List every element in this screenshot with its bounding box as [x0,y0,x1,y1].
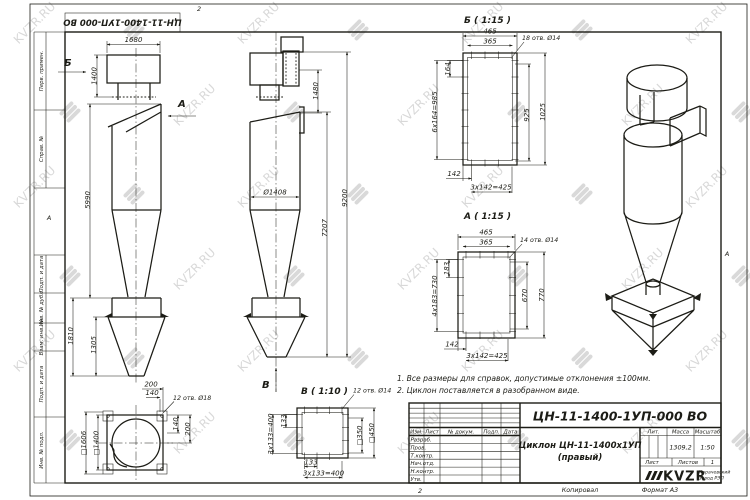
tb-name-line1: Циклон ЦН-11-1400х1УП [518,441,641,451]
dim-v-400-bottom: 3х133=400 [303,470,345,478]
detail-b-title: Б ( 1:15 ) [464,16,511,26]
dim-b-985: 6х164=985 [431,91,439,133]
dim-v-450: □450 [368,422,376,443]
stamp-vzam-inv: Взам. инв. № [39,318,45,355]
drawing-sheet: KVZR.RUKVZR.RUKVZR.RUKVZR.RUKVZR.RUKVZR.… [0,0,750,500]
dim-b-465: 465 [483,28,497,36]
company-name-line2: завод РЭП [699,476,724,482]
tb-col-list: Лист [424,430,440,436]
tb-col-podp: Подп. [483,430,499,436]
dim-plan-holes: 12 отв. Ø18 [173,394,211,402]
dim-plan-200-top: 200 [144,381,158,389]
detail-b: Б ( 1:15 ) 465 365 18 отв. Ø14 164 6х164… [431,16,560,193]
dim-a-465: 465 [479,229,493,237]
view-plan: 200 140 12 отв. Ø18 □1606 □1400 140 200 [80,381,211,481]
tb-sheets-label: Листов [677,460,698,466]
dim-7207: 7207 [321,219,329,237]
dim-1400: 1400 [91,67,99,85]
dim-b-holes: 18 отв. Ø14 [522,34,560,42]
tb-scale-label: Масштаб [695,430,721,436]
view-front: Ø1408 1480 7207 9200 В [243,32,351,392]
tb-name-line2: (правый) [558,453,603,463]
zone-mark-right: А [724,250,729,258]
dim-b-425: 3х142=425 [470,184,512,192]
dim-1680: 1680 [125,36,143,44]
dim-b-925: 925 [523,108,531,122]
dim-b-365: 365 [483,38,497,46]
tb-sheets-value: 1 [711,460,714,466]
dim-a-425: 3х142=425 [466,352,508,360]
tb-row-prov: Пров. [411,445,427,451]
dim-a-183: 183 [443,262,451,275]
dim-plan-1400: □1400 [93,430,101,455]
dim-plan-140-top: 140 [145,389,159,397]
stamp-podp-data-2: Подп. и дата [39,366,45,403]
note-line-2: 2. Циклон поставляется в разобранном вид… [397,386,580,395]
copied-label: Копировал [562,486,599,494]
view-arrow-a-label: А [177,99,186,110]
tb-row-tkontr: Т.контр. [411,453,434,459]
view-iso [605,65,706,356]
tb-row-razrab: Разраб. [411,438,432,444]
zone-mark-left: А [46,214,51,222]
company-name-line1: Карачевский [699,470,730,476]
tb-col-data: Дата [503,430,518,436]
detail-v: В ( 1:10 ) 12 отв. Ø14 133 3х133=400 □35… [267,387,391,479]
tb-row-nachotd: Нач.отд. [411,461,435,467]
detail-v-title: В ( 1:10 ) [301,387,348,397]
tb-doc-number: ЦН-11-1400-1УП-000 ВО [533,409,708,424]
dim-v-holes: 12 отв. Ø14 [353,387,391,395]
dim-plan-1606: □1606 [80,430,88,455]
dim-a-142: 142 [445,341,459,349]
stamp-inv-podl: Инв. № подл. [39,431,45,468]
tb-mass-label: Масса [672,430,689,436]
tb-row-nkontr: Н.контр. [411,469,435,475]
tb-row-utv: Утв. [411,477,422,483]
dim-a-770: 770 [538,288,546,302]
dim-a-365: 365 [479,239,493,247]
company-logo: KVZR Карачевский завод РЭП [645,470,730,485]
tb-lit-label: Лит. [646,430,659,436]
tb-sheet-label: Лист [644,460,660,466]
view-arrow-v-label: В [262,380,270,391]
dim-5990: 5990 [84,191,92,209]
tb-col-doc: № докум. [447,430,475,436]
tb-scale-value: 1:50 [700,444,714,452]
detail-a: А ( 1:15 ) 465 365 14 отв. Ø14 183 4х183… [431,212,558,361]
border-stamp-column: Перв. примен. Справ. № Подп. и дата Инв.… [34,32,65,483]
rotated-doc-number: ЦН-11-1400-1УП-000 ВО [63,17,182,27]
dim-a-730: 4х183=730 [431,275,439,317]
drawing-svg: ЦН-11-1400-1УП-000 ВО 2 2 А А Копировал … [0,0,750,500]
tb-mass-value: 1309,2 [669,444,691,452]
stamp-sprav-no: Справ. № [39,135,45,162]
dim-b-1025: 1025 [539,103,547,121]
notes: 1. Все размеры для справок, допустимые о… [397,374,651,395]
dim-plan-140-right: 140 [172,417,180,431]
zone-mark-bottom: 2 [418,487,422,495]
detail-a-title: А ( 1:15 ) [463,212,511,222]
dim-dia-1408: Ø1408 [262,189,287,197]
dim-1810: 1810 [67,327,75,345]
tb-col-izm: Изм. [410,430,423,436]
dim-v-400-left: 3х133=400 [267,413,275,455]
stamp-podp-data-1: Подп. и дата [39,256,45,293]
dim-v-350: □350 [356,425,364,446]
title-block: Изм. Лист № докум. Подп. Дата Разраб. Пр… [409,403,730,485]
view-side: 1680 1400 5990 1810 1305 Б А [58,36,196,385]
view-arrow-b-label: Б [64,58,72,69]
dim-1480: 1480 [312,82,320,100]
format-label: Формат А3 [642,486,678,494]
dim-b-142: 142 [447,170,461,178]
zone-mark-top: 2 [197,5,201,13]
dim-v-133-left: 133 [280,414,288,427]
dim-plan-200-right: 200 [184,422,192,436]
dim-a-670: 670 [521,288,529,302]
stamp-perv-primen: Перв. примен. [39,51,45,91]
dim-v-133-bottom: 133 [304,459,317,467]
dim-1305: 1305 [90,336,98,354]
dim-9200: 9200 [341,189,349,207]
note-line-1: 1. Все размеры для справок, допустимые о… [397,374,651,383]
dim-b-164: 164 [444,62,452,75]
dim-a-holes: 14 отв. Ø14 [520,236,558,244]
